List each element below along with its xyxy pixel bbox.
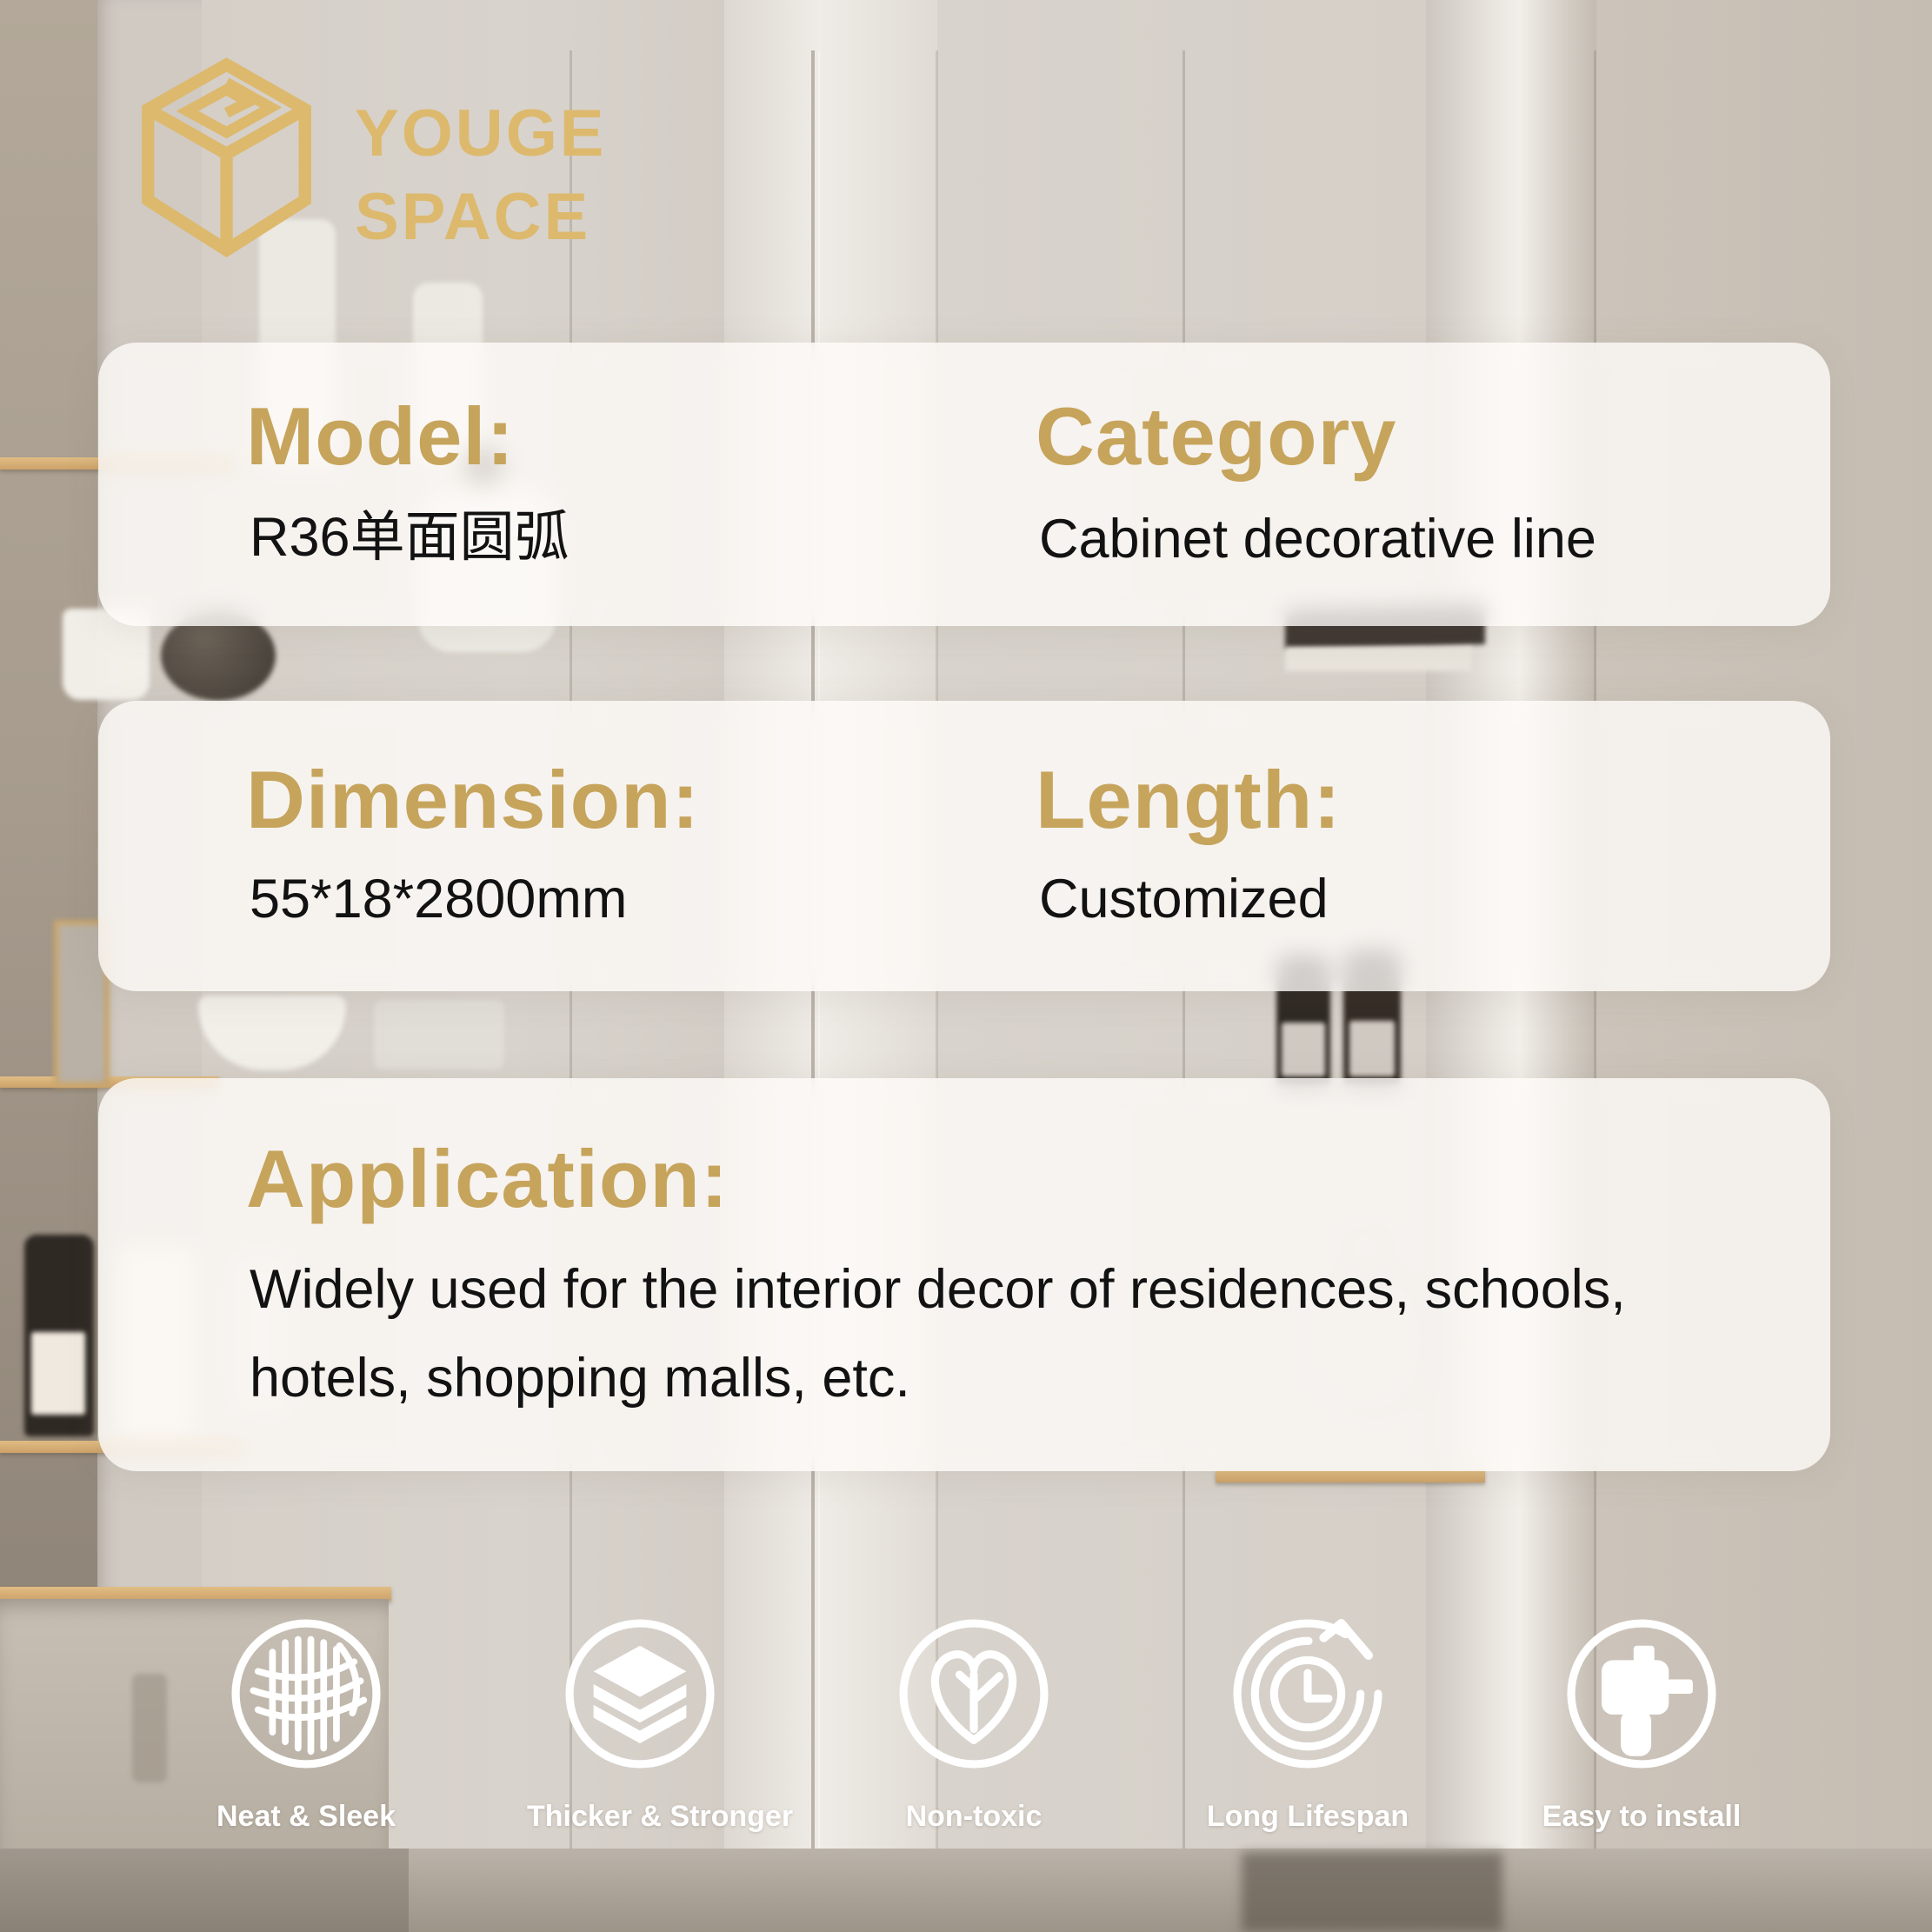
category-label: Category <box>1036 391 1396 481</box>
dimension-label: Dimension: <box>246 755 700 844</box>
feature-label: Easy to install <box>1529 1800 1755 1834</box>
feature-label: Thicker & Stronger <box>527 1800 753 1834</box>
small-bottle <box>132 1674 167 1782</box>
application-text-line1: Widely used for the interior decor of re… <box>250 1245 1771 1334</box>
spec-card-dimension-length: Dimension: 55*18*2800mm Length: Customiz… <box>98 701 1830 991</box>
wine-bottle <box>24 1235 94 1436</box>
stacked-layers-icon <box>527 1614 753 1774</box>
floor-shadow-right <box>1242 1852 1502 1932</box>
drill-install-icon <box>1529 1614 1755 1774</box>
category-value: Cabinet decorative line <box>1039 508 1596 570</box>
wine-label <box>31 1332 85 1415</box>
brand-name: YOUGE SPACE <box>355 92 607 259</box>
feature-non-toxic: Non-toxic <box>861 1614 1087 1834</box>
dimension-value: 55*18*2800mm <box>250 868 627 930</box>
application-text-line2: hotels, shopping malls, etc. <box>250 1334 1771 1422</box>
model-value: R36单面圆弧 <box>250 506 570 569</box>
clock-lifespan-icon <box>1195 1614 1421 1774</box>
spec-card-application: Application: Widely used for the interio… <box>98 1078 1830 1471</box>
wine-label <box>1349 1021 1395 1076</box>
brand-name-line1: YOUGE <box>355 92 607 176</box>
mesh-grid-icon <box>193 1614 419 1774</box>
length-label: Length: <box>1036 755 1342 844</box>
heart-leaf-icon <box>861 1614 1087 1774</box>
book-stack-light <box>1285 647 1472 671</box>
wine-label <box>1282 1023 1325 1076</box>
spec-card-model-category: Model: R36单面圆弧 Category Cabinet decorati… <box>98 343 1830 626</box>
feature-label: Non-toxic <box>861 1800 1087 1834</box>
feature-easy-install: Easy to install <box>1529 1614 1755 1834</box>
feature-thicker-stronger: Thicker & Stronger <box>527 1614 753 1834</box>
cube-logo-icon <box>137 57 316 257</box>
floor-shadow-left <box>0 1849 409 1932</box>
feature-long-lifespan: Long Lifespan <box>1195 1614 1421 1834</box>
model-label: Model: <box>246 391 515 481</box>
feature-neat-sleek: Neat & Sleek <box>193 1614 419 1834</box>
length-value: Customized <box>1039 868 1329 930</box>
feature-label: Long Lifespan <box>1195 1800 1421 1834</box>
glassware <box>374 1000 504 1069</box>
product-infographic: YOUGE SPACE Model: R36单面圆弧 Category Cabi… <box>0 0 1932 1932</box>
application-text: Widely used for the interior decor of re… <box>250 1245 1771 1422</box>
wood-shelf <box>1216 1469 1485 1482</box>
brand-name-line2: SPACE <box>355 176 607 259</box>
feature-label: Neat & Sleek <box>193 1800 419 1834</box>
application-label: Application: <box>246 1134 729 1223</box>
